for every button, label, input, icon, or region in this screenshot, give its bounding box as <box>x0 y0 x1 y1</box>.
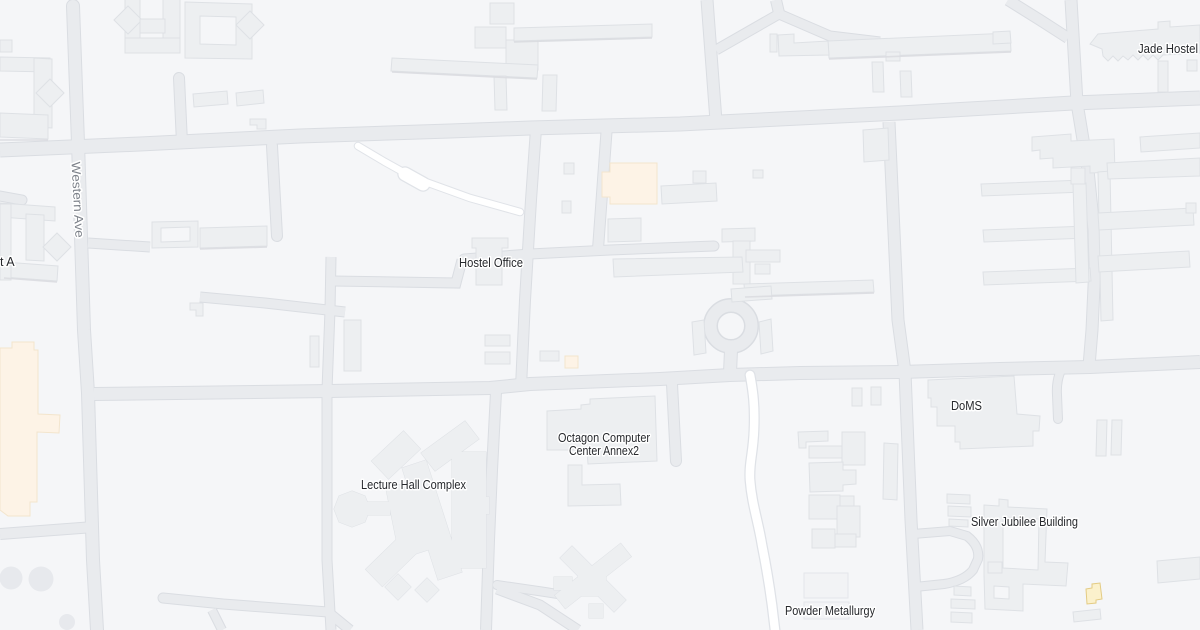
svg-text:DoMS: DoMS <box>951 399 982 413</box>
svg-text:Octagon Computer: Octagon Computer <box>558 431 650 445</box>
svg-text:Center Annex2: Center Annex2 <box>569 444 639 458</box>
svg-text:Powder Metallurgy: Powder Metallurgy <box>785 604 876 618</box>
svg-text:Jade Hostel: Jade Hostel <box>1138 42 1198 56</box>
svg-text:Hostel Office: Hostel Office <box>459 256 523 270</box>
svg-text:Silver Jubilee Building: Silver Jubilee Building <box>971 515 1078 529</box>
svg-text:t A: t A <box>0 255 15 269</box>
svg-text:Lecture Hall Complex: Lecture Hall Complex <box>361 478 467 492</box>
